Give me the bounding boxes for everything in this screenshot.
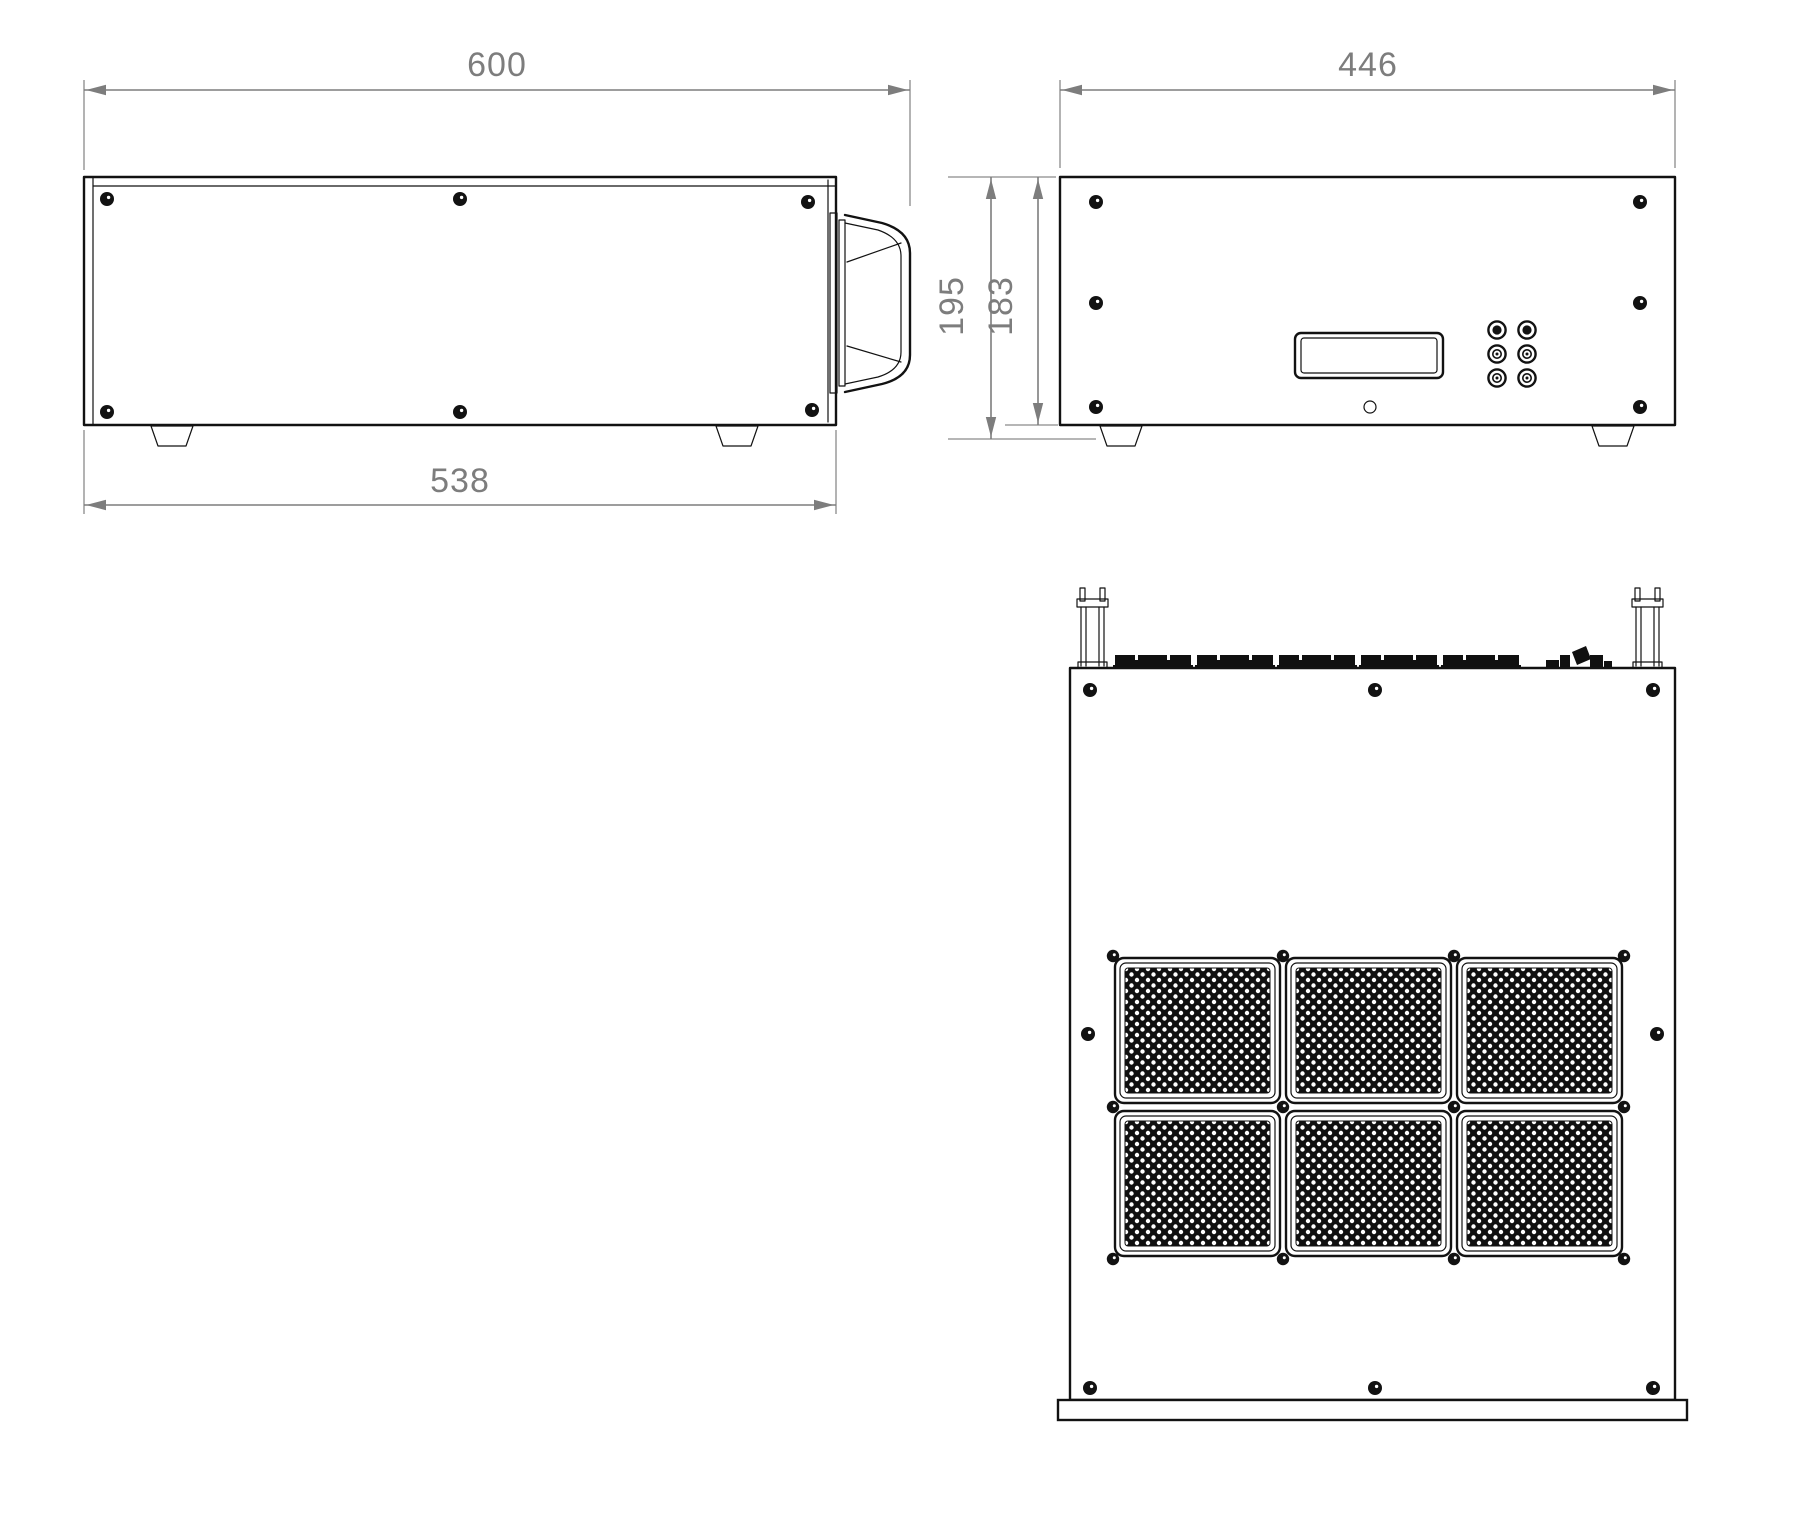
screw-hole	[1368, 683, 1382, 697]
vent-grille	[1286, 1111, 1451, 1256]
drawing-canvas: 600 538 446 195	[0, 0, 1800, 1519]
screw-hole	[1083, 1381, 1097, 1395]
front-view	[1060, 177, 1675, 446]
screw-hole	[1089, 195, 1103, 209]
panel-button	[1488, 345, 1505, 362]
terminal-strip	[1113, 655, 1193, 668]
screw-hole	[1107, 1253, 1119, 1265]
screw-hole	[1081, 1027, 1095, 1041]
device-foot	[1592, 426, 1634, 446]
panel-button	[1518, 369, 1535, 386]
device-foot	[716, 426, 758, 446]
screw-hole	[1618, 1101, 1630, 1113]
screw-hole	[1448, 1253, 1460, 1265]
terminal-strips	[1113, 655, 1521, 668]
dim-label-600: 600	[467, 46, 527, 84]
screw-hole	[1277, 1253, 1289, 1265]
screw-hole	[1277, 950, 1289, 962]
terminal-strip	[1195, 655, 1275, 668]
terminal-strip	[1277, 655, 1357, 668]
panel-button	[1488, 369, 1505, 386]
vent-grille	[1286, 958, 1451, 1103]
vent-grille-array	[1107, 950, 1630, 1265]
terminal-strip	[1359, 655, 1439, 668]
dimension-height-body: 183	[982, 177, 1058, 425]
screw-hole	[1089, 400, 1103, 414]
front-panel	[1060, 177, 1675, 425]
panel-button	[1518, 345, 1535, 362]
technical-drawing: 600 538 446 195	[0, 0, 1800, 1519]
screw-hole	[1618, 950, 1630, 962]
screw-hole	[100, 192, 114, 206]
screw-hole	[1107, 950, 1119, 962]
vent-grille	[1457, 958, 1622, 1103]
dim-label-183: 183	[982, 276, 1020, 336]
lcd-display	[1295, 333, 1443, 378]
screw-hole	[1448, 950, 1460, 962]
dim-label-538: 538	[430, 462, 490, 500]
dimension-depth-total: 600	[84, 46, 910, 206]
dimension-annotations: 600 538 446 195	[84, 46, 1675, 514]
screw-hole	[1107, 1101, 1119, 1113]
panel-button	[1488, 321, 1505, 338]
screw-hole	[1448, 1101, 1460, 1113]
side-view-body	[84, 177, 836, 425]
device-foot	[151, 426, 193, 446]
screw-hole	[1646, 1381, 1660, 1395]
screw-hole	[1089, 296, 1103, 310]
screw-hole	[453, 192, 467, 206]
screw-hole	[1650, 1027, 1664, 1041]
screw-hole	[100, 405, 114, 419]
connector-cluster	[1546, 646, 1612, 668]
screw-hole	[805, 403, 819, 417]
handle-side-profile	[830, 213, 910, 393]
screw-hole	[1083, 683, 1097, 697]
screw-hole	[801, 195, 815, 209]
vent-grille	[1457, 1111, 1622, 1256]
vent-grille	[1115, 958, 1280, 1103]
side-view	[84, 177, 910, 446]
dimension-depth-body: 538	[84, 430, 836, 514]
button-cluster	[1488, 321, 1535, 386]
screw-hole	[453, 405, 467, 419]
rack-handle-bracket	[1077, 588, 1108, 668]
dimension-width-front: 446	[1060, 46, 1675, 168]
rack-handle-bracket	[1632, 588, 1663, 668]
bottom-view	[1058, 588, 1687, 1420]
screw-hole	[1618, 1253, 1630, 1265]
dim-label-195: 195	[933, 276, 971, 336]
status-led	[1364, 401, 1376, 413]
terminal-strip	[1441, 655, 1521, 668]
screw-hole	[1277, 1101, 1289, 1113]
screw-hole	[1646, 683, 1660, 697]
dim-label-446: 446	[1338, 46, 1398, 84]
screw-hole	[1633, 195, 1647, 209]
screw-hole	[1633, 296, 1647, 310]
device-foot	[1100, 426, 1142, 446]
screw-hole	[1633, 400, 1647, 414]
panel-button	[1518, 321, 1535, 338]
vent-grille	[1115, 1111, 1280, 1256]
screw-hole	[1368, 1381, 1382, 1395]
base-plate	[1058, 1400, 1687, 1420]
